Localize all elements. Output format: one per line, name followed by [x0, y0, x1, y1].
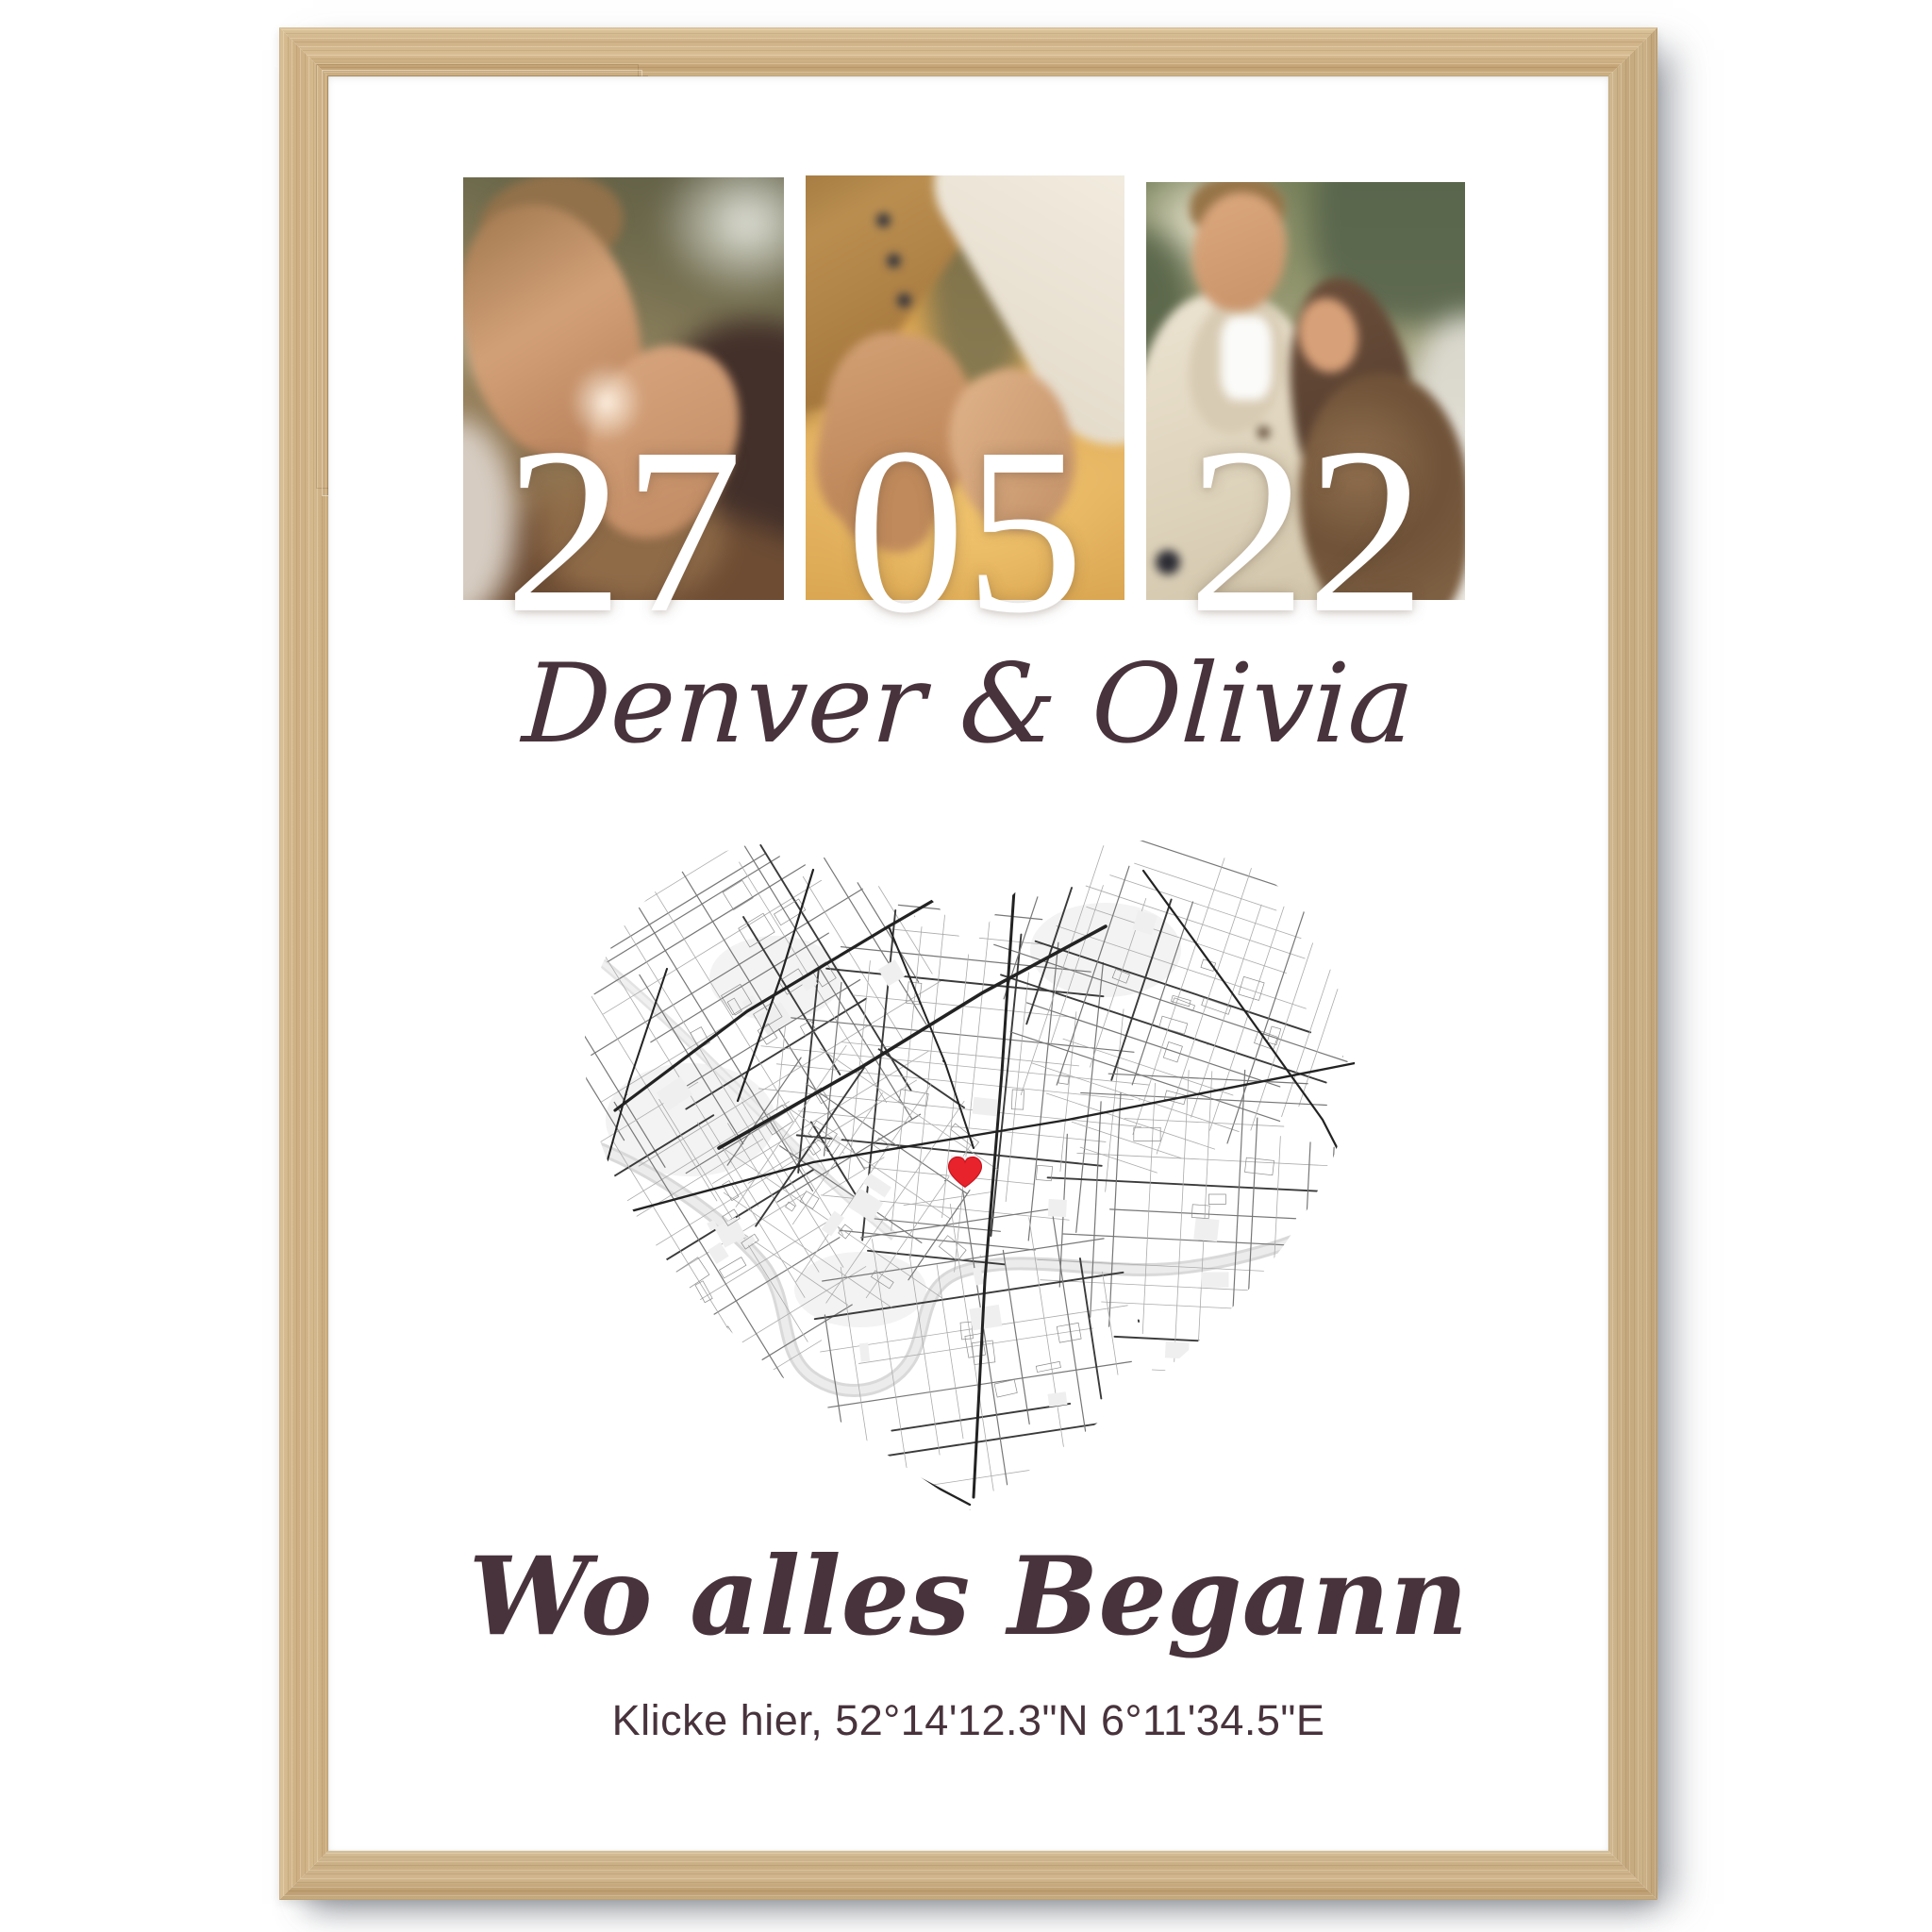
- date-month: 05: [846, 411, 1084, 649]
- frame-bar-top: [279, 27, 1657, 76]
- date-year: 22: [1188, 411, 1425, 649]
- heart-map-svg: [577, 837, 1362, 1518]
- product-photo: 27 05 22 Denver & Olivia Wo alles Begann…: [0, 0, 1932, 1932]
- date-day: 27: [505, 411, 742, 649]
- frame-bar-right: [1608, 27, 1657, 1900]
- heart-street-map: [577, 837, 1362, 1518]
- frame-bar-left: [279, 27, 328, 1900]
- picture-frame: 27 05 22 Denver & Olivia Wo alles Begann…: [279, 27, 1657, 1900]
- poster: 27 05 22 Denver & Olivia Wo alles Begann…: [328, 76, 1608, 1851]
- headline: Wo alles Begann: [328, 1532, 1608, 1661]
- frame-bar-bottom: [279, 1851, 1657, 1900]
- coordinates-text: Klicke hier, 52°14'12.3"N 6°11'34.5"E: [328, 1695, 1608, 1746]
